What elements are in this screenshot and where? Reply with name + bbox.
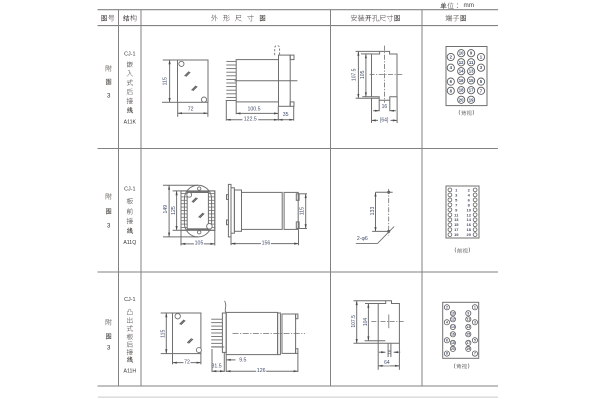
- svg-text:3: 3: [107, 223, 111, 230]
- svg-text:156: 156: [262, 240, 271, 246]
- svg-text:[64]: [64]: [380, 117, 389, 123]
- svg-text:115: 115: [161, 329, 167, 337]
- svg-text:6: 6: [446, 338, 448, 342]
- svg-text:mm: mm: [464, 2, 475, 9]
- svg-text:20: 20: [451, 347, 455, 351]
- svg-text:16: 16: [451, 332, 455, 336]
- svg-text:14: 14: [459, 69, 464, 74]
- svg-text:1: 1: [474, 305, 476, 309]
- svg-text:12: 12: [451, 317, 455, 321]
- svg-text:9: 9: [467, 311, 469, 315]
- svg-text:(: (: [459, 110, 461, 116]
- svg-text:15: 15: [469, 78, 474, 83]
- svg-text:107.5: 107.5: [352, 68, 358, 81]
- svg-text:16: 16: [387, 349, 392, 354]
- svg-text:126: 126: [257, 368, 266, 374]
- svg-text:(: (: [454, 363, 456, 369]
- svg-text:18: 18: [459, 88, 464, 93]
- svg-text:4: 4: [446, 320, 448, 324]
- svg-text:31.5: 31.5: [212, 363, 222, 369]
- svg-text:): ): [468, 363, 470, 369]
- svg-text:3: 3: [107, 93, 111, 100]
- svg-text:CJ-1: CJ-1: [124, 187, 135, 193]
- svg-text:3: 3: [474, 320, 476, 324]
- svg-text:18: 18: [451, 341, 455, 345]
- svg-text:CJ-1: CJ-1: [124, 51, 135, 57]
- svg-text:35: 35: [283, 112, 289, 118]
- svg-text:72: 72: [188, 107, 194, 113]
- svg-text:A11K: A11K: [124, 120, 137, 126]
- svg-text:8: 8: [446, 352, 448, 356]
- svg-text:149: 149: [163, 205, 169, 214]
- svg-text:10: 10: [451, 311, 455, 315]
- svg-text:): ): [469, 248, 471, 254]
- svg-text:104: 104: [363, 318, 369, 327]
- svg-text:100.5: 100.5: [248, 107, 261, 113]
- svg-text:5: 5: [474, 338, 476, 342]
- svg-text:19: 19: [466, 347, 470, 351]
- svg-text:107.5: 107.5: [351, 315, 357, 328]
- svg-text:13: 13: [469, 69, 474, 74]
- svg-text:13: 13: [466, 325, 470, 329]
- svg-text:105: 105: [195, 241, 204, 247]
- svg-text:3: 3: [107, 344, 111, 351]
- svg-text:11: 11: [469, 60, 474, 65]
- svg-text:105: 105: [360, 70, 366, 79]
- svg-text:2: 2: [446, 305, 448, 309]
- svg-text:125: 125: [171, 206, 177, 215]
- svg-text:11: 11: [467, 317, 471, 321]
- svg-text:7: 7: [474, 352, 476, 356]
- svg-text:115: 115: [163, 77, 169, 85]
- svg-text:20: 20: [466, 232, 471, 237]
- svg-text:64: 64: [384, 360, 390, 366]
- svg-text:): ): [473, 110, 475, 116]
- svg-text:16: 16: [459, 78, 464, 83]
- svg-text:14: 14: [451, 325, 455, 329]
- svg-text:19: 19: [454, 232, 459, 237]
- svg-text:115: 115: [300, 207, 306, 215]
- svg-text:12: 12: [459, 60, 464, 65]
- svg-text:A11Q: A11Q: [123, 240, 136, 246]
- svg-text:16: 16: [382, 104, 388, 110]
- svg-text:9.5: 9.5: [239, 357, 246, 363]
- svg-text:122.5: 122.5: [244, 117, 257, 123]
- svg-text:2-φ6: 2-φ6: [357, 236, 368, 242]
- svg-text:17: 17: [466, 341, 470, 345]
- svg-text:15: 15: [466, 332, 470, 336]
- svg-text:17: 17: [469, 88, 474, 93]
- svg-text:133: 133: [370, 207, 376, 216]
- svg-text:19: 19: [469, 97, 474, 102]
- svg-text:72: 72: [184, 359, 190, 365]
- svg-text:CJ-1: CJ-1: [124, 297, 135, 303]
- svg-text:(: (: [455, 248, 457, 254]
- svg-text:10: 10: [459, 51, 464, 56]
- svg-text:20: 20: [459, 97, 464, 102]
- svg-text:A11H: A11H: [124, 369, 137, 375]
